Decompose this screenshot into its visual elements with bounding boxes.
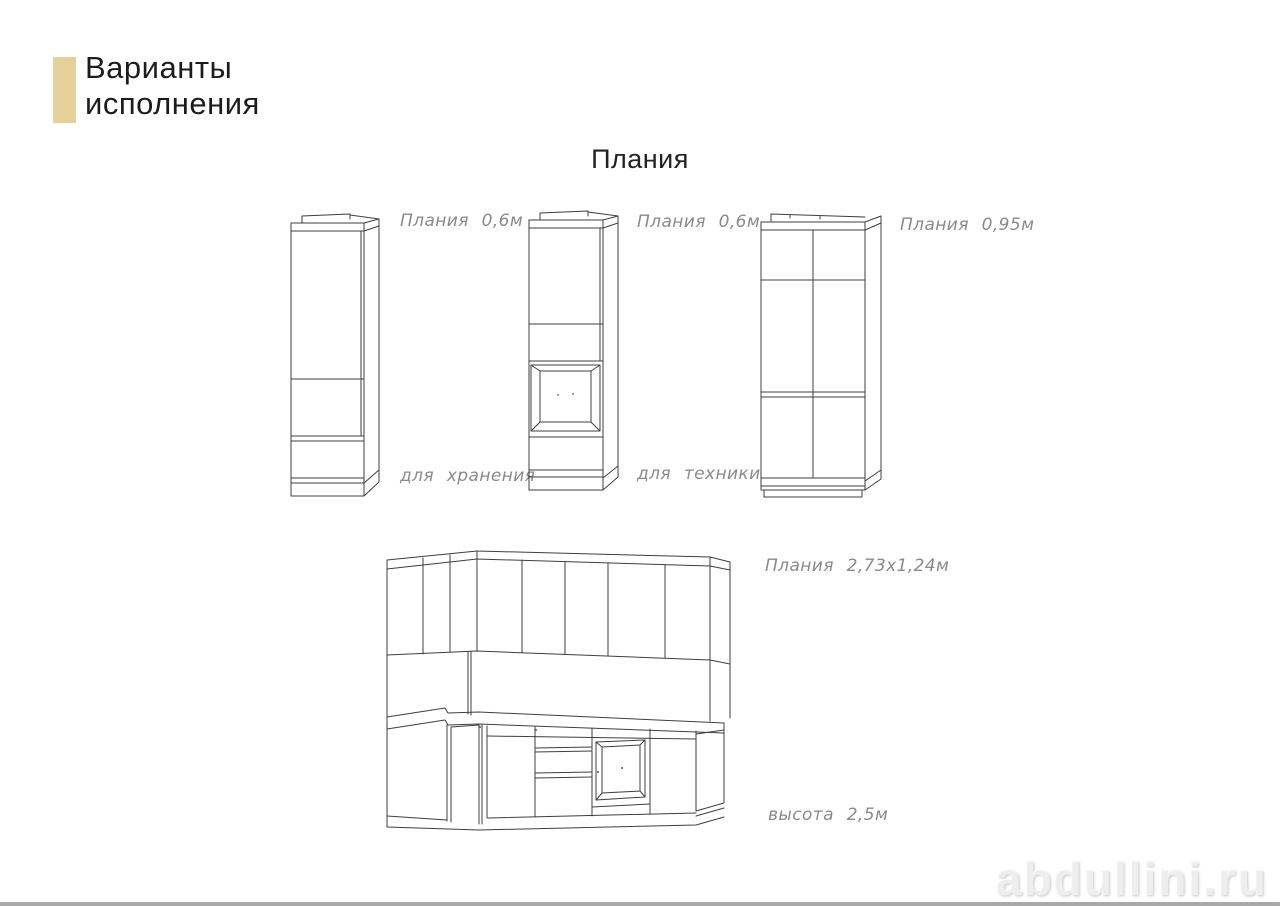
cabinet-appliance-size-label: Плания 0,6м [637, 212, 760, 232]
header-line-2: исполнения [85, 86, 260, 122]
accent-bar [53, 57, 76, 123]
kitchen-height-label: высота 2,5м [768, 805, 888, 825]
watermark-text: abdullini.ru [996, 852, 1268, 906]
cabinet-storage-purpose-label: для хранения [400, 466, 535, 486]
cabinet-double-drawing [759, 211, 885, 499]
cabinet-appliance-drawing [528, 209, 624, 494]
cabinet-appliance-purpose-label: для техники [637, 464, 761, 484]
header-line-1: Варианты [85, 50, 260, 86]
cabinet-storage-drawing [290, 212, 385, 499]
bottom-edge-bar [0, 902, 1280, 906]
catalog-page: Варианты исполнения Плания Плания 0,6м д… [0, 0, 1280, 906]
cabinet-storage-size-label: Плания 0,6м [400, 211, 523, 231]
kitchen-drawing [384, 545, 738, 837]
page-header: Варианты исполнения [85, 50, 260, 122]
kitchen-size-label: Плания 2,73х1,24м [765, 556, 949, 576]
section-title: Плания [0, 144, 1280, 175]
cabinet-double-size-label: Плания 0,95м [900, 215, 1034, 235]
